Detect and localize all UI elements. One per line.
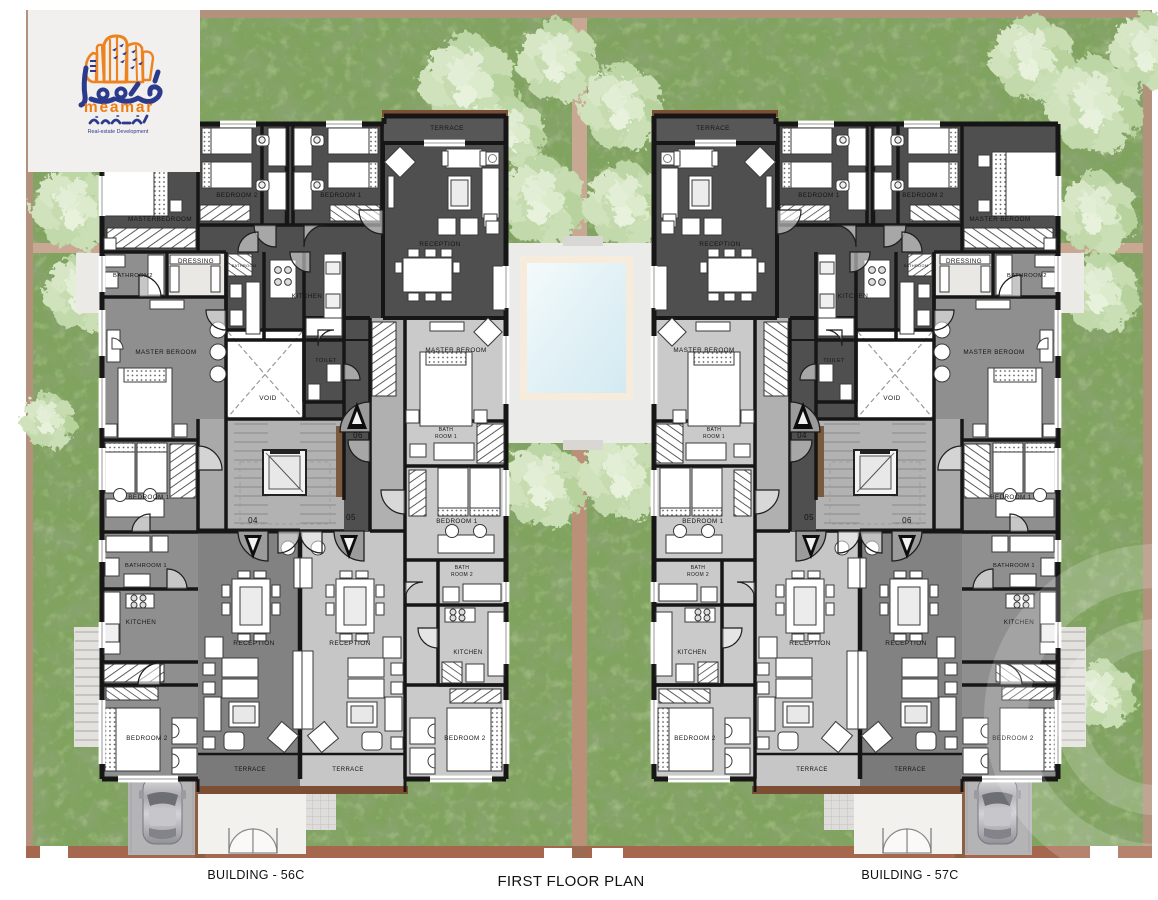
svg-text:RECEPTION: RECEPTION — [789, 640, 831, 647]
svg-text:VOID: VOID — [883, 395, 901, 402]
svg-text:RECEPTION: RECEPTION — [233, 640, 275, 647]
svg-text:KITCHEN: KITCHEN — [292, 293, 322, 300]
svg-text:ROOM 1: ROOM 1 — [435, 434, 457, 440]
svg-text:BATH: BATH — [439, 427, 454, 433]
svg-text:BEDROOM 1: BEDROOM 1 — [990, 494, 1031, 501]
svg-text:ROOM 2: ROOM 2 — [451, 572, 473, 578]
svg-text:DRESSING: DRESSING — [178, 258, 214, 265]
svg-text:BATHROOM2: BATHROOM2 — [113, 273, 153, 279]
svg-text:BEDROOM 1: BEDROOM 1 — [798, 192, 839, 199]
svg-text:meamar: meamar — [84, 99, 154, 116]
svg-text:BEDROOM 1: BEDROOM 1 — [320, 192, 361, 199]
svg-text:04: 04 — [797, 431, 807, 440]
svg-text:MASTER BEROOM: MASTER BEROOM — [963, 349, 1024, 356]
svg-text:MASTER BEROOM: MASTER BEROOM — [969, 216, 1030, 223]
svg-text:TERRACE: TERRACE — [796, 767, 827, 773]
svg-text:BATHROOM 1: BATHROOM 1 — [125, 563, 167, 569]
svg-text:DRESSING: DRESSING — [946, 258, 982, 265]
svg-text:BATH: BATH — [707, 427, 722, 433]
svg-text:KITCHEN: KITCHEN — [453, 650, 482, 656]
svg-text:BEDROOM 2: BEDROOM 2 — [444, 735, 485, 742]
svg-text:TERRACE: TERRACE — [696, 125, 730, 132]
svg-text:BATHROOM 1: BATHROOM 1 — [993, 563, 1035, 569]
svg-text:TERRACE: TERRACE — [894, 767, 925, 773]
svg-text:RECEPTION: RECEPTION — [699, 241, 741, 248]
svg-text:BEDROOM 2: BEDROOM 2 — [126, 735, 167, 742]
svg-text:BEDROOM 1: BEDROOM 1 — [128, 494, 169, 501]
svg-text:TERRACE: TERRACE — [332, 767, 363, 773]
svg-text:MASTER BEROOM: MASTER BEROOM — [673, 347, 734, 354]
svg-text:BEDROOM 1: BEDROOM 1 — [682, 518, 723, 525]
svg-text:TERRACE: TERRACE — [234, 767, 265, 773]
svg-text:06: 06 — [353, 431, 363, 440]
svg-text:BATH: BATH — [455, 565, 470, 571]
svg-text:06: 06 — [902, 516, 912, 525]
svg-text:BATHROOM2: BATHROOM2 — [1007, 273, 1047, 279]
svg-text:BEDROOM 1: BEDROOM 1 — [436, 518, 477, 525]
svg-text:RECEPTION: RECEPTION — [419, 241, 461, 248]
svg-text:BATHROOM: BATHROOM — [232, 264, 257, 268]
svg-text:BATH: BATH — [691, 565, 706, 571]
svg-text:TERRACE: TERRACE — [430, 125, 464, 132]
svg-text:VOID: VOID — [259, 395, 277, 402]
svg-text:Real-estate Development: Real-estate Development — [88, 129, 149, 135]
svg-text:KITCHEN: KITCHEN — [126, 619, 156, 626]
svg-text:BATHROOM: BATHROOM — [904, 264, 929, 268]
svg-text:ROOM 1: ROOM 1 — [703, 434, 725, 440]
svg-text:BEDROOM 2: BEDROOM 2 — [216, 192, 257, 199]
svg-text:RECEPTION: RECEPTION — [885, 640, 927, 647]
svg-text:BUILDING - 56C: BUILDING - 56C — [207, 868, 304, 882]
svg-text:BEDROOM 2: BEDROOM 2 — [902, 192, 943, 199]
svg-text:04: 04 — [248, 516, 258, 525]
svg-text:05: 05 — [346, 513, 356, 522]
svg-text:KITCHEN: KITCHEN — [838, 293, 868, 300]
svg-text:TOILET: TOILET — [315, 358, 337, 364]
svg-text:BEDROOM 2: BEDROOM 2 — [674, 735, 715, 742]
svg-text:FIRST FLOOR PLAN: FIRST FLOOR PLAN — [497, 873, 644, 890]
svg-text:RECEPTION: RECEPTION — [329, 640, 371, 647]
svg-text:BUILDING - 57C: BUILDING - 57C — [861, 868, 958, 882]
svg-text:KITCHEN: KITCHEN — [677, 650, 706, 656]
svg-text:TOILET: TOILET — [823, 358, 845, 364]
svg-text:ROOM 2: ROOM 2 — [687, 572, 709, 578]
svg-text:MASTER BEROOM: MASTER BEROOM — [135, 349, 196, 356]
svg-text:MASTER BEROOM: MASTER BEROOM — [425, 347, 486, 354]
svg-text:05: 05 — [804, 513, 814, 522]
svg-text:MASTERBEDROOM: MASTERBEDROOM — [128, 216, 192, 223]
